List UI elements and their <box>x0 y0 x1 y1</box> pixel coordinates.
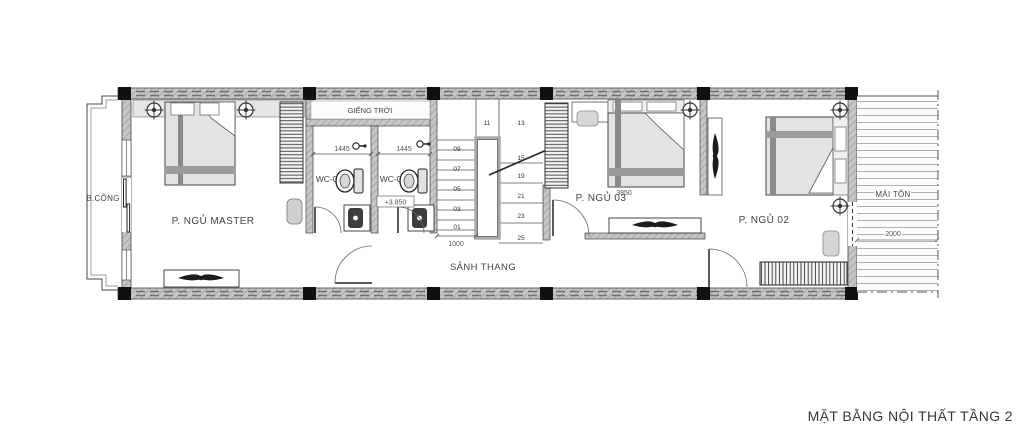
bedroom-3: 3850 P. NGỦ 03 <box>553 100 701 236</box>
column <box>540 87 553 100</box>
bed-band <box>608 168 684 176</box>
roof: MÁI TÔN 2000 <box>855 90 939 298</box>
step-number: 13 <box>517 120 525 127</box>
master-door <box>335 246 372 283</box>
shower-icon <box>344 205 370 231</box>
clothes-rack <box>760 262 847 285</box>
pillow <box>200 103 219 115</box>
ceiling-light-icon <box>831 197 850 216</box>
step-number: 11 <box>484 120 491 127</box>
pillow <box>835 159 846 183</box>
sliding-door-panel <box>127 204 130 232</box>
bed-band <box>165 166 235 174</box>
column <box>540 287 553 300</box>
stool <box>577 111 598 126</box>
skylight: GIẾNG TRỜI <box>311 101 430 119</box>
skylight-label: GIẾNG TRỜI <box>348 105 393 115</box>
bottom-wall <box>118 288 857 299</box>
roof-label: MÁI TÔN <box>875 190 910 199</box>
master-bed <box>165 102 235 185</box>
bed-band <box>766 131 833 138</box>
top-wall <box>118 88 857 99</box>
bedroom2-door <box>709 249 747 287</box>
toilet-icon <box>336 169 363 193</box>
balcony-label: B.CÔNG <box>86 194 119 203</box>
right-wall <box>848 99 857 289</box>
nightstand <box>823 231 839 256</box>
wc-03: 1445 WC-03 +3.850 <box>376 141 434 233</box>
door-swing-arc <box>335 246 372 283</box>
shower-icon <box>408 205 434 231</box>
floor-plan-canvas: B.CÔNG P. NGỦ MASTER GIẾNG TRỜI <box>0 0 1024 433</box>
skylight-wall <box>306 119 437 126</box>
column <box>303 287 316 300</box>
wardrobe <box>280 102 303 183</box>
pillow <box>835 127 846 151</box>
floor-elevation-value: +3.850 <box>385 200 407 207</box>
bed3 <box>608 100 684 187</box>
stair-hall-label: SẢNH THANG <box>450 261 516 273</box>
stair-void <box>476 138 499 238</box>
step-number: 09 <box>453 146 461 153</box>
bed-runner <box>770 117 776 195</box>
wc-divider-wall <box>371 126 378 233</box>
bedroom3-south-wall <box>585 233 705 239</box>
column <box>845 87 858 100</box>
elevation-tag: +3.850 <box>377 196 414 207</box>
faucet-icon <box>417 141 431 147</box>
pouf <box>287 199 302 224</box>
master-bedroom-label: P. NGỦ MASTER <box>172 214 255 227</box>
balcony: B.CÔNG <box>86 96 119 290</box>
step-number: 15 <box>517 155 525 162</box>
column <box>118 287 131 300</box>
wardrobe <box>545 103 568 188</box>
wc02-door <box>315 207 341 233</box>
bed2 <box>766 117 848 195</box>
bedroom3-label: P. NGỦ 03 <box>576 191 627 204</box>
column <box>303 87 316 100</box>
balcony-inner-line <box>91 100 118 286</box>
column <box>427 287 440 300</box>
door-swing-arc <box>709 249 747 287</box>
master-bedroom: P. NGỦ MASTER <box>133 100 372 287</box>
door-swing-arc <box>315 207 341 233</box>
bedroom2-west-wall <box>700 99 707 195</box>
faucet-icon <box>353 143 367 149</box>
drawing-title: MẶT BẰNG NỘI THẤT TẦNG 2 <box>808 407 1013 424</box>
door-swing-arc <box>553 200 589 236</box>
step-number: 19 <box>517 173 525 180</box>
wc-02: 1445 WC-02 <box>311 143 373 233</box>
column <box>845 287 858 300</box>
floor-plan-page: B.CÔNG P. NGỦ MASTER GIẾNG TRỜI <box>0 0 1024 433</box>
stair-bedroom3-wall <box>543 185 550 240</box>
stair-width-dimension: 1000 <box>435 234 478 248</box>
column <box>427 87 440 100</box>
step-number: 01 <box>453 224 461 231</box>
wc03-width-dim: 1445 <box>396 146 412 153</box>
column <box>697 87 710 100</box>
column <box>697 287 710 300</box>
bedroom3-door <box>553 200 589 236</box>
pillow <box>647 102 676 111</box>
sliding-door-panel <box>124 179 127 207</box>
step-number: 03 <box>453 206 461 213</box>
column <box>118 87 131 100</box>
step-number: 21 <box>517 193 525 200</box>
step-number: 23 <box>517 213 525 220</box>
roof-width-dim: 2000 <box>885 231 901 238</box>
step-number: 07 <box>453 166 461 173</box>
step-number: 25 <box>517 235 525 242</box>
step-number: 05 <box>453 186 461 193</box>
bedroom-2: P. NGỦ 02 <box>708 101 850 288</box>
stair-width-dim: 1000 <box>448 241 464 248</box>
toilet-icon <box>400 169 427 193</box>
wc02-width-dim: 1445 <box>334 146 350 153</box>
bedroom2-label: P. NGỦ 02 <box>739 213 790 226</box>
pillow <box>171 103 194 115</box>
balcony-outline <box>87 96 118 290</box>
